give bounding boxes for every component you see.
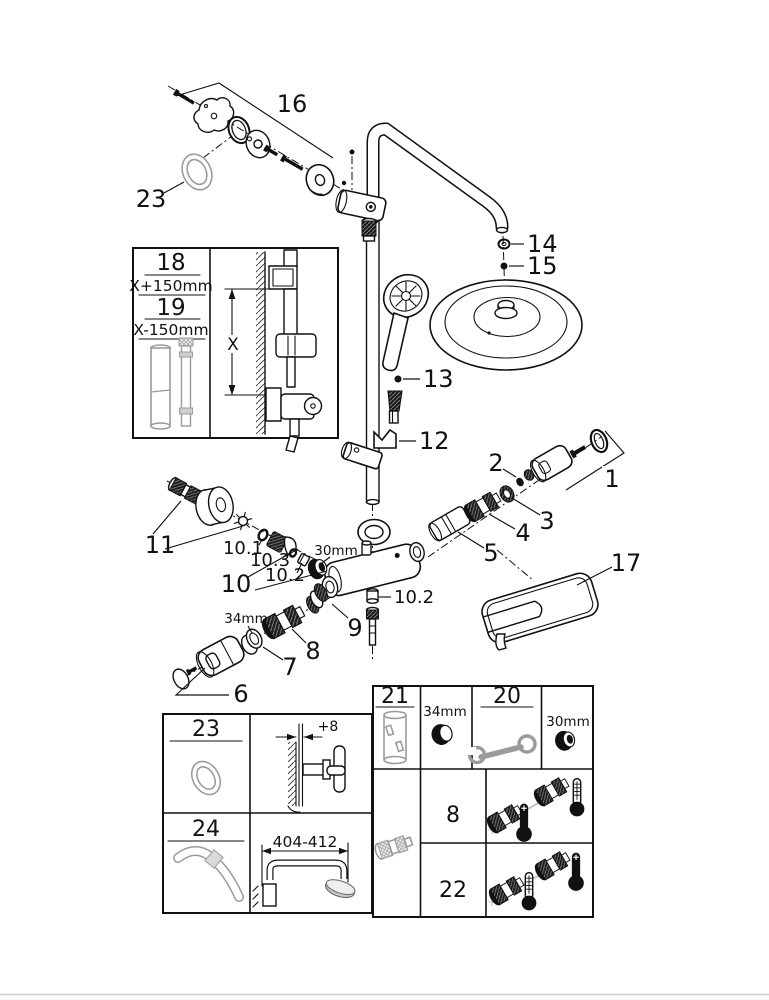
- callout-12: 12: [419, 427, 450, 455]
- cap-screw: [186, 665, 198, 675]
- spare-pipe-21-drawing: [384, 712, 406, 764]
- stop-button: [362, 541, 371, 555]
- x-dimension-label: X: [227, 335, 239, 355]
- tray-clip: [496, 634, 506, 650]
- table-cell-24: 24: [192, 817, 220, 842]
- table-cell-21: 21: [381, 684, 409, 709]
- callout-23: 23: [136, 185, 167, 213]
- callout-34mm: 34mm: [224, 611, 267, 627]
- seal-ring-drawing: [186, 756, 226, 799]
- callout-10-2: 10.2: [265, 565, 305, 586]
- arm-dim-drawing: 404-412: [253, 833, 357, 907]
- thermostat-valve: [301, 520, 427, 646]
- callout-10-2b: 10.2: [394, 587, 434, 608]
- handle-cap-6: [193, 633, 247, 680]
- inset-column-drawing: [266, 250, 322, 452]
- shower-arm-outline: [373, 129, 502, 227]
- ring-34mm-drawing: [429, 722, 454, 748]
- spec-table-right: 21 34mm 20 30mm: [373, 684, 593, 917]
- wall-flange: [302, 161, 338, 199]
- plus8-dim: +8: [318, 719, 339, 735]
- soap-tray-17: [479, 567, 612, 650]
- hose-cone: [388, 391, 402, 423]
- callout-4: 4: [515, 519, 530, 547]
- inset-part-19: 19: [156, 295, 185, 321]
- inset-dim-19: X-150mm: [133, 321, 208, 339]
- extension-tube-thin: [179, 338, 193, 426]
- shower-arm-fill: [373, 129, 502, 227]
- callout-16: 16: [277, 90, 308, 118]
- callout-3: 3: [539, 507, 554, 535]
- screw-15: [501, 263, 508, 270]
- page-bottom-edge: [0, 995, 769, 1000]
- aquadimmer-10-2: [367, 589, 378, 603]
- inset-box-18-19: 18 X+150mm 19 X-150mm: [129, 248, 338, 452]
- grip-ring-23: [176, 149, 217, 194]
- table-row-22: 22: [439, 878, 467, 903]
- rain-shower-head: [430, 280, 582, 370]
- wall-union-assembly-16: [173, 83, 355, 199]
- hand-shower: [376, 266, 437, 370]
- pipe-loop: [358, 520, 390, 545]
- spec-table-left: 23 +8 24 404-: [163, 714, 372, 913]
- star-washer: [234, 512, 251, 529]
- exploded-parts-diagram: 18 X+150mm 19 X-150mm: [0, 0, 769, 1000]
- callout-9: 9: [347, 614, 362, 642]
- callout-15: 15: [527, 252, 558, 280]
- exploded-parts-page: 18 X+150mm 19 X-150mm: [0, 0, 769, 1000]
- callout-1: 1: [604, 465, 619, 493]
- callout-10: 10: [221, 570, 252, 598]
- wall-section: [256, 252, 265, 434]
- wrench-20-drawing: [465, 736, 535, 763]
- callout-8: 8: [305, 637, 320, 665]
- callout-2: 2: [488, 449, 503, 477]
- table-dim-30mm: 30mm: [546, 714, 589, 730]
- handle-screw: [569, 444, 587, 459]
- callout-17: 17: [611, 549, 642, 577]
- bar-adapter: [362, 219, 376, 242]
- callout-30mm: 30mm: [314, 543, 357, 559]
- inset-part-18: 18: [156, 250, 185, 276]
- callout-6: 6: [233, 680, 248, 708]
- callout-11: 11: [145, 531, 176, 559]
- temperature-handle-group: [170, 597, 391, 695]
- callout-7: 7: [282, 653, 297, 681]
- plus8-drawing: +8: [276, 719, 345, 812]
- arm-dim-label: 404-412: [273, 833, 338, 851]
- shower-column: [334, 129, 582, 504]
- callout-13: 13: [423, 365, 454, 393]
- arm-gasket-14: [499, 240, 510, 249]
- handle-ring: [588, 428, 611, 455]
- table-dim-34mm: 34mm: [423, 704, 466, 720]
- hand-shower-handle: [383, 313, 408, 371]
- nut-30mm-drawing: [553, 728, 577, 752]
- gasket-13: [395, 376, 402, 383]
- long-screw: [280, 154, 304, 172]
- table-cell-23: 23: [192, 717, 220, 742]
- spare-arm-drawing: [178, 850, 239, 897]
- table-row-8: 8: [446, 803, 460, 828]
- extension-tube-long: [151, 345, 170, 429]
- handle-cap-1: [527, 443, 574, 484]
- union-bracket: [242, 127, 274, 162]
- callout-5: 5: [483, 539, 498, 567]
- row-8-drawing: [484, 775, 584, 842]
- outlet-connector: [367, 608, 379, 646]
- row-22-drawing: [486, 849, 583, 911]
- spare-cartridge-gray-drawing: [374, 833, 414, 860]
- inset-dim-18: X+150mm: [129, 277, 212, 295]
- table-cell-20: 20: [493, 684, 521, 709]
